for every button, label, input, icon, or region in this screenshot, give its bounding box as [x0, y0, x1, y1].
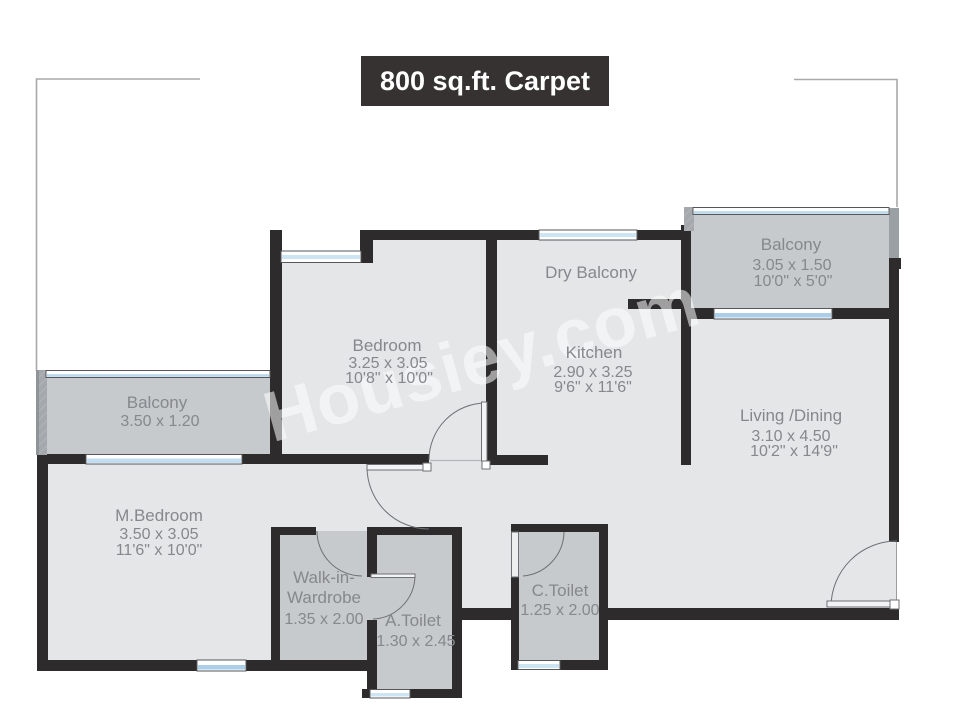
- svg-text:Balcony: Balcony: [127, 393, 188, 412]
- svg-text:9'6" x 11'6": 9'6" x 11'6": [554, 379, 632, 396]
- svg-text:3.05 x 1.50: 3.05 x 1.50: [752, 257, 831, 274]
- svg-text:1.25 x 2.00: 1.25 x 2.00: [520, 602, 599, 619]
- svg-text:M.Bedroom: M.Bedroom: [115, 506, 203, 525]
- svg-text:C.Toilet: C.Toilet: [532, 581, 589, 600]
- svg-text:11'6" x 10'0": 11'6" x 10'0": [116, 542, 203, 559]
- svg-text:Wardrobe: Wardrobe: [287, 588, 361, 607]
- svg-text:Dry Balcony: Dry Balcony: [545, 263, 637, 282]
- svg-text:Walk-in-: Walk-in-: [293, 568, 355, 587]
- svg-text:A.Toilet: A.Toilet: [385, 611, 441, 630]
- svg-text:3.50 x 1.20: 3.50 x 1.20: [120, 413, 199, 430]
- svg-text:10'8" x 10'0": 10'8" x 10'0": [345, 370, 433, 387]
- svg-text:10'0" x 5'0": 10'0" x 5'0": [754, 273, 833, 290]
- svg-text:1.30 x 2.45: 1.30 x 2.45: [376, 633, 455, 650]
- svg-text:Balcony: Balcony: [761, 235, 822, 254]
- svg-text:Kitchen: Kitchen: [566, 343, 623, 362]
- svg-text:Bedroom: Bedroom: [353, 336, 422, 355]
- svg-text:3.50 x 3.05: 3.50 x 3.05: [119, 526, 198, 543]
- svg-text:10'2" x 14'9": 10'2" x 14'9": [750, 443, 838, 460]
- svg-text:Living /Dining: Living /Dining: [740, 406, 842, 425]
- svg-text:1.35 x 2.00: 1.35 x 2.00: [284, 611, 363, 628]
